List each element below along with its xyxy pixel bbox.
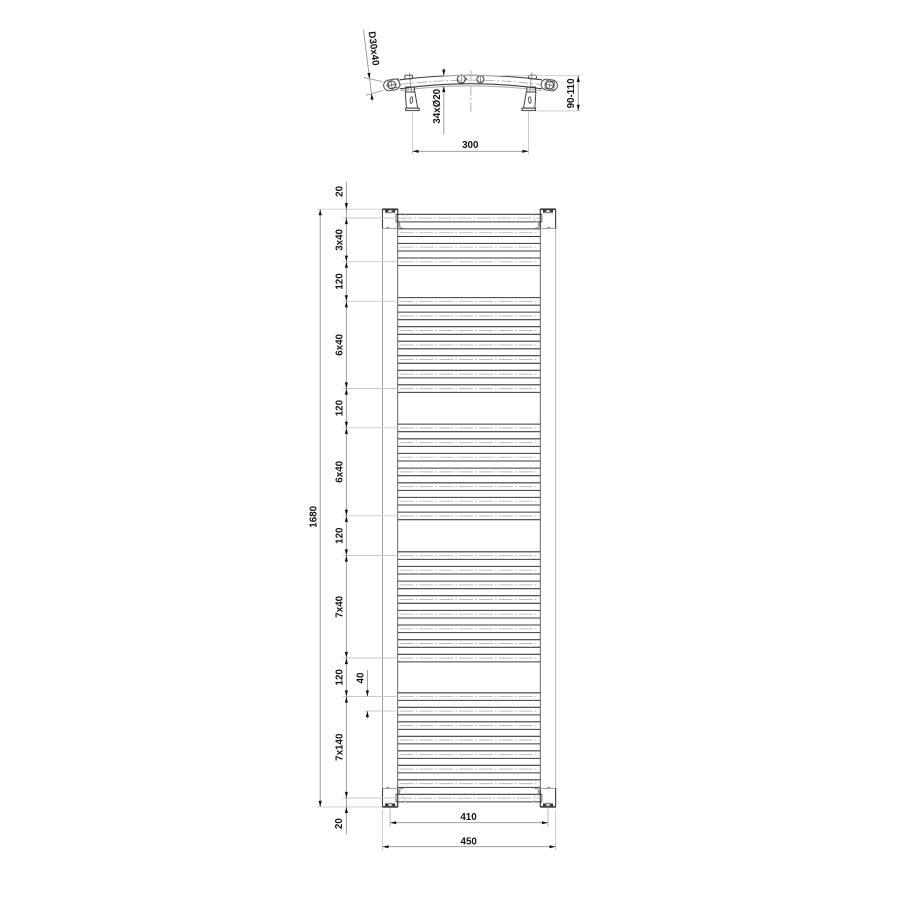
svg-text:40: 40 [356,672,367,683]
svg-text:7x140: 7x140 [335,733,346,761]
svg-text:3x40: 3x40 [335,228,346,250]
svg-text:7x40: 7x40 [335,595,346,617]
svg-text:20: 20 [334,185,345,196]
svg-text:6x40: 6x40 [335,333,346,355]
svg-text:120: 120 [335,273,346,290]
svg-text:6x40: 6x40 [335,460,346,482]
svg-text:300: 300 [462,140,479,151]
svg-text:1680: 1680 [308,505,319,527]
svg-text:120: 120 [335,399,346,416]
svg-text:34xØ20: 34xØ20 [432,88,443,123]
svg-text:20: 20 [334,818,345,829]
svg-text:90-110: 90-110 [566,78,577,109]
svg-text:450: 450 [461,836,478,847]
svg-text:120: 120 [335,527,346,544]
svg-text:410: 410 [460,812,477,823]
svg-text:120: 120 [335,669,346,686]
